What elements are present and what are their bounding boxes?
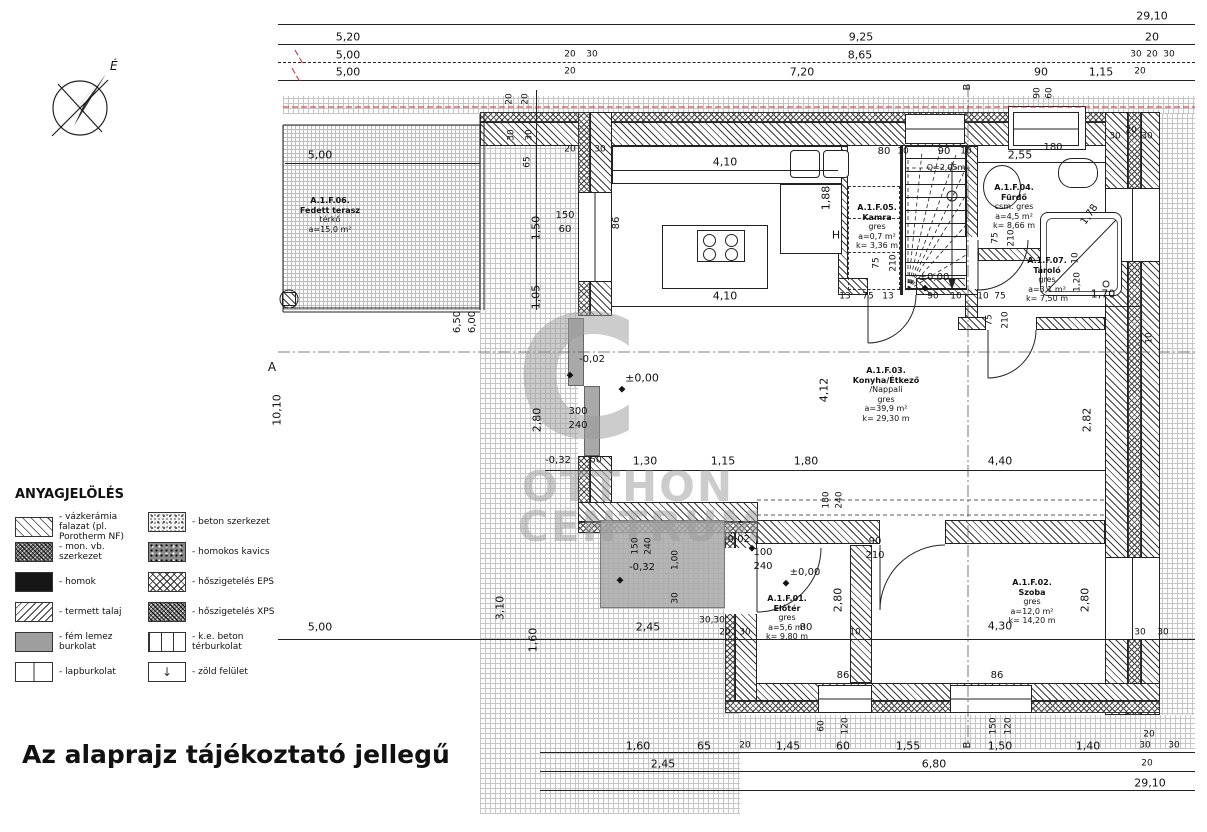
legend-item: - homok: [15, 572, 145, 592]
dim-label: 20: [1141, 760, 1152, 769]
dim-label: 30: [1141, 133, 1152, 142]
dim-label: 7,20: [790, 67, 815, 78]
dim-label: 10: [897, 148, 908, 157]
sw-kebeton-swatch: [148, 632, 186, 652]
sw-monvb-swatch: [15, 542, 53, 562]
dim-label: 150: [555, 211, 574, 221]
dim-label: 1,70: [1091, 289, 1116, 300]
dim-line: [285, 163, 480, 164]
dim-label: 10: [849, 629, 860, 638]
dim-label: 5,00: [336, 67, 361, 78]
dim-label: H: [832, 230, 840, 241]
dim-label: 20: [564, 68, 575, 77]
dim-label: 60: [559, 225, 572, 235]
dim-label: 6,50: [453, 311, 463, 333]
room-info: k= 3,36 m: [856, 241, 898, 251]
level-marker-icon: ◆: [619, 386, 626, 395]
dim-label: 100: [753, 548, 772, 558]
dim-label: 20: [1145, 32, 1159, 43]
dim-label: 4,12: [819, 378, 830, 403]
dim-label: 75: [873, 257, 882, 268]
dim-label: 20: [506, 93, 515, 104]
room-name: Fedett terasz: [300, 206, 360, 216]
dim-label: 210: [865, 551, 884, 561]
roof-mark-red: [292, 50, 303, 82]
dim-line: [278, 62, 1195, 63]
dim-line: [278, 44, 1195, 45]
burner-icon: [703, 248, 716, 261]
dim-line: [540, 790, 1195, 791]
level-marker: ±0,00: [790, 568, 821, 578]
room-name: Szoba: [1008, 588, 1055, 598]
dim-label: 20: [522, 93, 531, 104]
dim-label: 20: [564, 51, 575, 60]
dim-label: 2,82: [1082, 408, 1093, 433]
room-info: térkő: [300, 215, 360, 225]
dim-label: 1,15: [711, 456, 736, 467]
level-marker-icon: ◆: [617, 577, 624, 586]
room-info: csm. gres: [993, 202, 1035, 212]
legend-item-label: - homok: [59, 577, 145, 587]
kitchen-sink: [790, 150, 820, 178]
dim-label: 86: [837, 671, 850, 681]
room-label-A1F04: A.1.F.04.Fürdőcsm. gresa=4,5 m²k= 8,66 m: [993, 183, 1035, 231]
legend-item: - hőszigetelés XPS: [148, 602, 278, 622]
room-id: A.1.F.06.: [300, 196, 360, 206]
dim-label: 1,60: [528, 628, 539, 653]
dim-label: 13: [839, 293, 850, 302]
dim-label: 1,50: [531, 216, 542, 241]
dim-label: 90: [938, 147, 951, 157]
dim-label: 8,65: [848, 50, 873, 61]
legend-item: - lapburkolat: [15, 662, 145, 682]
room-id: A.1.F.01.: [766, 594, 808, 604]
legend-item-label: - mon. vb. szerkezet: [59, 542, 145, 562]
legend-item-label: - hőszigetelés EPS: [192, 577, 278, 587]
wall-insulation: [725, 701, 1160, 713]
sw-vazkeramia-swatch: [15, 517, 53, 537]
dim-label: 65: [697, 741, 711, 752]
dim-label: 1,55: [896, 741, 921, 752]
level-marker-icon: ◆: [922, 285, 929, 294]
dim-label: 210: [890, 254, 899, 271]
sw-homok-swatch: [15, 572, 53, 592]
dim-label: 180: [1043, 143, 1062, 153]
window: [1013, 112, 1079, 146]
level-marker: ±0,00: [625, 373, 659, 384]
room-info: k= 9,80 m: [766, 632, 808, 642]
dim-label: 30: [1109, 133, 1120, 142]
understair-line: [848, 252, 900, 253]
room-id: A.1.F.03.: [853, 366, 919, 376]
dim-label: 6,00: [468, 311, 478, 333]
sw-zold-swatch: ↓: [148, 662, 186, 682]
dim-label: 20: [1143, 731, 1154, 740]
window: [1105, 557, 1160, 640]
dim-label: 5,00: [308, 622, 333, 633]
dim-label: 90: [1034, 67, 1048, 78]
level-marker-icon: ◆: [749, 545, 756, 554]
dim-label: 1,50: [988, 741, 1013, 752]
dim-label: 10: [950, 293, 961, 302]
dim-label: 240: [753, 562, 772, 572]
dim-label: 210: [1002, 311, 1011, 328]
dim-label: 1,00: [672, 550, 681, 570]
room-info: k= 29,30 m: [853, 414, 919, 424]
room-label-A1F01: A.1.F.01.Előtérgresa=5,6 m²k= 9,80 m: [766, 594, 808, 642]
dim-line: [540, 771, 1195, 772]
room-info: gres: [766, 613, 808, 623]
legend-item: - homokos kavics: [148, 542, 278, 562]
dim-label: 5,00: [336, 50, 361, 61]
room-info: a=0,7 m²: [856, 232, 898, 242]
legend-item: - beton szerkezet: [148, 512, 278, 532]
sw-lap-swatch: [15, 662, 53, 682]
room-info: gres: [1026, 275, 1068, 285]
legend-item: - k.e. beton térburkolat: [148, 632, 278, 652]
dim-label: 86: [991, 671, 1004, 681]
wall-eloter-szoba: [850, 545, 872, 683]
room-name: Kamra: [856, 213, 898, 223]
room-id: A.1.F.05.: [856, 203, 898, 213]
dim-label: 86: [612, 217, 622, 230]
level-marker: ±0,00: [919, 273, 950, 283]
wall-tarolo-south: [958, 317, 986, 330]
legend-item: - termett talaj: [15, 602, 145, 622]
room-label-A1F06: A.1.F.06.Fedett terasztérkőa=15,0 m²: [300, 196, 360, 234]
room-id: A.1.F.02.: [1008, 578, 1055, 588]
dim-line: [612, 306, 1140, 307]
dim-label: 2,45: [651, 759, 676, 770]
wall-interior: [757, 520, 880, 544]
sw-xps-swatch: [148, 602, 186, 622]
dim-label: Q=2,05m: [927, 164, 966, 172]
dim-label: 10: [977, 293, 988, 302]
room-name: Tároló: [1026, 266, 1068, 276]
dim-label: 60: [1046, 87, 1055, 98]
sw-termett-swatch: [15, 602, 53, 622]
dim-label: 75: [986, 314, 995, 325]
dim-label: 1,60: [626, 741, 651, 752]
dim-label: 240: [836, 491, 845, 508]
legend-item-label: - lapburkolat: [59, 667, 145, 677]
dim-label: 20: [739, 742, 750, 751]
dim-label: 30: [526, 129, 535, 140]
room-label-A1F03: A.1.F.03.Konyha/Étkező/Nappaligresa=39,9…: [853, 366, 919, 423]
dim-label: 90: [927, 293, 938, 302]
dim-label: 1,40: [1076, 741, 1101, 752]
legend-item-label: - vázkerámia falazat (pl. Porotherm NF): [59, 512, 145, 542]
dim-label: 30: [1134, 629, 1145, 638]
section-label: B: [963, 742, 973, 749]
dim-label: 120: [1005, 717, 1014, 734]
sw-kavics-swatch: [148, 542, 186, 562]
terrace-post: [282, 292, 296, 306]
dim-label: 4,10: [713, 291, 738, 302]
level-marker: -0,32: [629, 563, 655, 573]
level-marker: -0,02: [724, 535, 750, 545]
kitchen-sink: [823, 150, 849, 178]
dim-line: [278, 80, 1195, 81]
dim-line: [278, 24, 1195, 25]
dim-label: -0,32: [545, 456, 571, 466]
dim-label: 180: [823, 491, 832, 508]
room-info: k= 8,66 m: [993, 221, 1035, 231]
legend-item: - mon. vb. szerkezet: [15, 542, 145, 562]
legend-item-label: - termett talaj: [59, 607, 145, 617]
dim-line: [612, 170, 838, 171]
dim-label: 6,80: [922, 759, 947, 770]
legend-item: - hőszigetelés EPS: [148, 572, 278, 592]
dim-label: 1,45: [776, 741, 801, 752]
dim-label: 240: [645, 537, 654, 554]
room-info: a=4,5 m²: [993, 212, 1035, 222]
room-label-A1F02: A.1.F.02.Szobagresa=12,0 m²k= 14,20 m: [1008, 578, 1055, 626]
dim-label: 90: [1034, 87, 1043, 98]
dim-label: 60: [836, 741, 850, 752]
dim-label: 60: [818, 720, 827, 731]
room-info: gres: [853, 395, 919, 405]
legend-item-label: - k.e. beton térburkolat: [192, 632, 278, 652]
dim-label: 210: [1008, 229, 1017, 246]
dim-label: 9,25: [849, 32, 874, 43]
dim-label: 5,20: [336, 32, 361, 43]
room-info: k= 7,50 m: [1026, 294, 1068, 304]
dim-label: 1,88: [821, 186, 832, 211]
dim-line: [978, 162, 1105, 163]
burner-icon: [725, 234, 738, 247]
dim-label: 20: [719, 629, 730, 638]
legend: ANYAGJELÖLÉS - vázkerámia falazat (pl. P…: [0, 0, 280, 832]
legend-item: - vázkerámia falazat (pl. Porotherm NF): [15, 512, 145, 542]
dim-label: 30: [1157, 629, 1168, 638]
legend-item-label: - zöld felület: [192, 667, 278, 677]
dim-label: 30: [586, 51, 597, 60]
dim-label: 20: [1146, 51, 1157, 60]
wall-tarolo-south: [1036, 317, 1105, 330]
dim-label: 75: [994, 293, 1005, 302]
dim-label: 30: [508, 129, 517, 140]
level-marker-icon: ◆: [567, 372, 574, 381]
room-info: gres: [1008, 597, 1055, 607]
dim-label: 80: [878, 147, 891, 157]
dim-label: 120: [842, 717, 851, 734]
dim-label: 75: [992, 232, 1001, 243]
sw-beton-swatch: [148, 512, 186, 532]
window: [950, 685, 1032, 713]
dim-label: 1,05: [531, 285, 542, 310]
entry-door-opening: [725, 548, 757, 614]
dim-label: 4,10: [713, 157, 738, 168]
legend-item: - fém lemez burkolat: [15, 632, 145, 652]
room-name: Konyha/Étkező: [853, 376, 919, 386]
window: [578, 192, 612, 282]
room-info: a=15,0 m²: [300, 225, 360, 235]
level-marker: -0,02: [579, 355, 605, 365]
dim-label: 30: [594, 146, 605, 155]
room-name: Előtér: [766, 604, 808, 614]
room-info: gres: [856, 222, 898, 232]
dim-label: 1,30: [633, 456, 658, 467]
room-info: a=12,0 m²: [1008, 607, 1055, 617]
dim-label: 50: [590, 457, 601, 466]
room-info: a=3,1 m²: [1026, 285, 1068, 295]
dim-label: 29,10: [1136, 11, 1168, 22]
room-info: k= 14,20 m: [1008, 616, 1055, 626]
room-info: a=5,6 m²: [766, 623, 808, 633]
dim-label: 150: [990, 717, 999, 734]
tall-cabinet: [780, 184, 842, 254]
window: [905, 114, 965, 144]
dim-line: [278, 639, 1195, 640]
room-label-A1F05: A.1.F.05.Kamragresa=0,7 m²k= 3,36 m: [856, 203, 898, 251]
dim-label: 4,40: [988, 456, 1013, 467]
page-title: Az alaprajz tájékoztató jellegű: [22, 740, 450, 769]
dim-label: 2,45: [636, 622, 661, 633]
dim-label: 10: [960, 148, 971, 157]
dim-label: 20: [1134, 68, 1145, 77]
dim-label: 240: [568, 421, 587, 431]
dim-label: 300: [568, 407, 587, 417]
dim-label: 30: [1163, 51, 1174, 60]
dim-label: 30: [739, 629, 750, 638]
legend-item-label: - beton szerkezet: [192, 517, 278, 527]
dim-label: 30: [672, 592, 681, 603]
dim-label: 2,55: [1008, 150, 1033, 161]
burner-icon: [703, 234, 716, 247]
dim-label: 150: [632, 537, 641, 554]
legend-item: ↓- zöld felület: [148, 662, 278, 682]
legend-title: ANYAGJELÖLÉS: [15, 487, 124, 502]
room-id: A.1.F.04.: [993, 183, 1035, 193]
dim-label: 3,10: [495, 596, 506, 621]
dim-label: 30: [1130, 51, 1141, 60]
dim-label: 30: [1139, 742, 1150, 751]
dim-label: 20: [564, 146, 575, 155]
stair-divider: [900, 146, 903, 295]
legend-item-label: - fém lemez burkolat: [59, 632, 145, 652]
legend-item-label: - homokos kavics: [192, 547, 278, 557]
room-name: Fürdő: [993, 193, 1035, 203]
dim-label: 2,80: [1080, 588, 1091, 613]
dim-label: 10: [1146, 332, 1155, 343]
sw-femlemez-swatch: [15, 632, 53, 652]
watermark-logo: C: [515, 280, 642, 478]
dim-label: 65: [524, 156, 533, 167]
window: [818, 685, 872, 713]
dim-label: 2,80: [532, 408, 543, 433]
legend-item-label: - hőszigetelés XPS: [192, 607, 278, 617]
dim-label: 10: [1072, 252, 1081, 263]
dim-label: 2,80: [833, 588, 844, 613]
room-info: a=39,9 m²: [853, 404, 919, 414]
dim-label: 20: [1125, 127, 1136, 136]
dim-label: 75: [862, 293, 873, 302]
dim-label: 30,30: [699, 617, 725, 626]
room-id: A.1.F.07.: [1026, 256, 1068, 266]
room-info: /Nappali: [853, 385, 919, 395]
dim-label: 5,00: [308, 150, 333, 161]
room-label-A1F07: A.1.F.07.Tárológresa=3,1 m²k= 7,50 m: [1026, 256, 1068, 304]
dim-label: 90: [869, 537, 882, 547]
dim-label: 1,20: [1074, 272, 1083, 292]
level-marker-icon: ◆: [783, 580, 790, 589]
dim-label: 30: [1168, 742, 1179, 751]
dim-label: 1,80: [794, 456, 819, 467]
dim-label: 29,10: [1134, 778, 1166, 789]
sw-eps-swatch: [148, 572, 186, 592]
dim-label: 1,15: [1089, 67, 1114, 78]
wall-interior: [945, 520, 1105, 544]
dim-line: [536, 90, 537, 310]
section-label: B: [963, 84, 973, 91]
dim-label: 13: [882, 293, 893, 302]
burner-icon: [725, 248, 738, 261]
wall-south-wing: [725, 683, 1160, 701]
